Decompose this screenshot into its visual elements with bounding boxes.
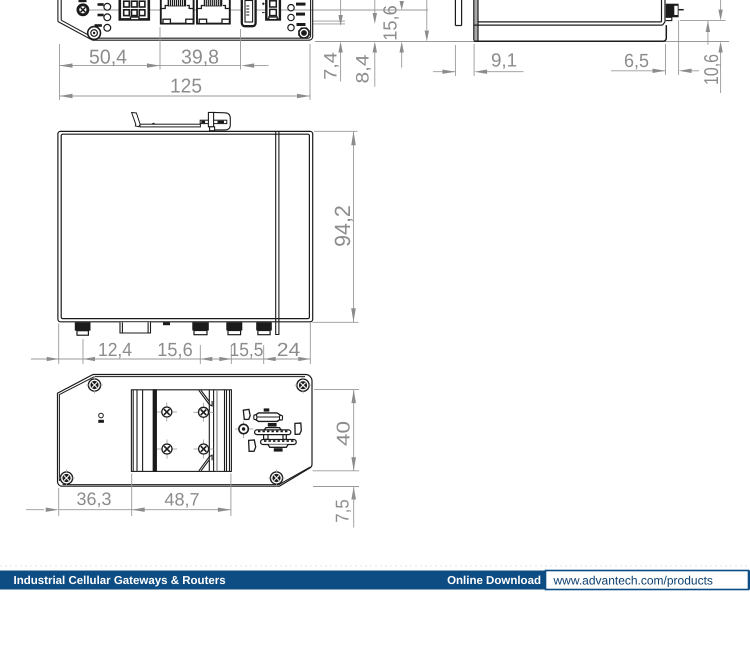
svg-text:7,5: 7,5 [332,499,353,522]
svg-text:48,7: 48,7 [164,490,199,510]
svg-text:94,2: 94,2 [330,205,355,247]
svg-text:Industrial Cellular Gateways &: Industrial Cellular Gateways & Routers [14,575,226,587]
svg-text:9,1: 9,1 [491,51,517,72]
svg-text:15,5: 15,5 [230,340,264,361]
svg-text:8,4: 8,4 [353,55,373,84]
svg-text:15,6: 15,6 [381,5,402,40]
svg-text:125: 125 [170,76,202,98]
svg-text:Online Download: Online Download [447,575,541,587]
svg-text:6,5: 6,5 [624,51,649,72]
svg-text:www.advantech.com/products: www.advantech.com/products [553,574,713,588]
svg-text:36,3: 36,3 [77,489,112,509]
svg-text:40: 40 [333,421,354,446]
svg-text:24: 24 [277,340,301,361]
svg-text:50,4: 50,4 [89,47,127,69]
svg-text:7,4: 7,4 [321,52,341,80]
svg-text:12,4: 12,4 [98,340,132,361]
svg-text:10,6: 10,6 [701,54,723,85]
svg-text:15,6: 15,6 [157,340,192,361]
svg-text:39,8: 39,8 [181,47,219,69]
